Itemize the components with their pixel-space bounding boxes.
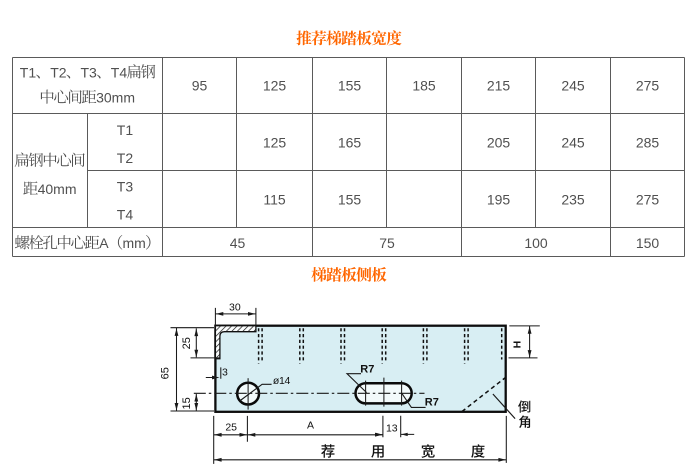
svg-text:R7: R7: [360, 363, 374, 375]
svg-text:R7: R7: [425, 396, 439, 408]
svg-text:13: 13: [386, 423, 398, 435]
svg-text:15: 15: [181, 397, 193, 409]
svg-text:125: 125: [263, 78, 287, 94]
svg-text:A: A: [307, 419, 314, 431]
svg-text:235: 235: [561, 192, 585, 208]
svg-text:115: 115: [263, 192, 286, 208]
svg-text:40mm: 40mm: [38, 181, 77, 197]
svg-text:150: 150: [636, 235, 660, 251]
svg-text:T4: T4: [111, 64, 128, 80]
svg-text:285: 285: [636, 134, 660, 150]
svg-text:75: 75: [379, 235, 395, 251]
svg-text:T4: T4: [117, 207, 134, 223]
svg-text:100: 100: [524, 235, 548, 251]
svg-text:245: 245: [561, 134, 585, 150]
svg-text:T1: T1: [20, 64, 37, 80]
svg-text:275: 275: [636, 78, 660, 94]
svg-text:ø14: ø14: [273, 375, 291, 387]
svg-text:A: A: [99, 235, 109, 251]
svg-text:mm: mm: [123, 235, 146, 251]
svg-text:T3: T3: [81, 64, 98, 80]
svg-text:165: 165: [338, 134, 362, 150]
svg-text:T2: T2: [50, 64, 67, 80]
svg-text:65: 65: [160, 367, 172, 379]
svg-text:T3: T3: [117, 178, 134, 194]
svg-text:205: 205: [487, 134, 511, 150]
svg-text:125: 125: [263, 134, 287, 150]
svg-text:H: H: [511, 341, 523, 349]
svg-text:215: 215: [487, 78, 511, 94]
svg-text:275: 275: [636, 192, 660, 208]
svg-text:30mm: 30mm: [96, 90, 135, 106]
svg-text:155: 155: [338, 192, 362, 208]
svg-text:155: 155: [338, 78, 362, 94]
svg-text:245: 245: [561, 78, 585, 94]
svg-text:T1: T1: [117, 122, 134, 138]
svg-text:25: 25: [225, 422, 237, 434]
svg-text:185: 185: [412, 78, 436, 94]
svg-text:195: 195: [487, 192, 511, 208]
svg-text:T2: T2: [117, 150, 134, 166]
svg-text:25: 25: [181, 337, 193, 349]
svg-text:3: 3: [222, 366, 228, 378]
svg-text:95: 95: [192, 78, 208, 94]
svg-text:30: 30: [229, 302, 241, 314]
svg-text:45: 45: [230, 235, 246, 251]
